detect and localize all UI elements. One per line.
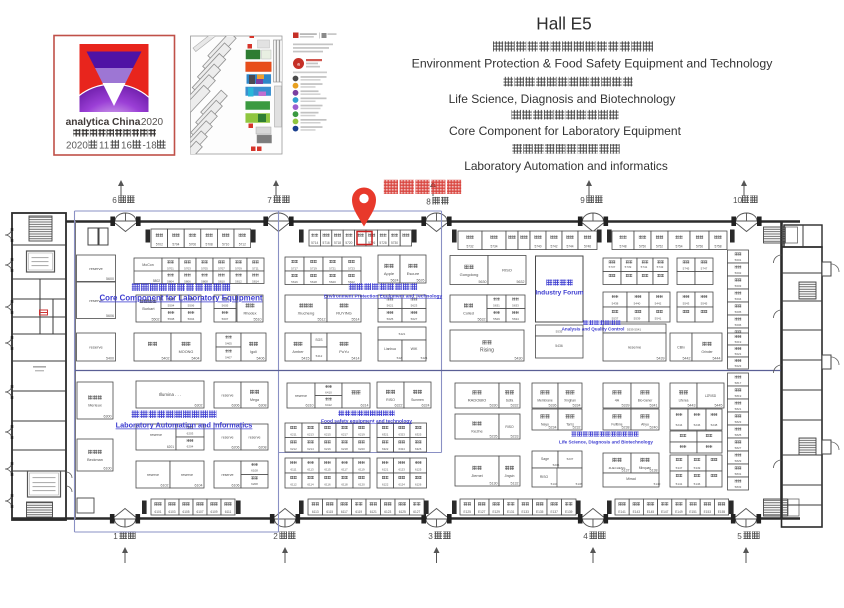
svg-text:5405: 5405: [225, 342, 232, 346]
svg-text:6324: 6324: [398, 447, 405, 451]
svg-text:5829: 5829: [735, 459, 742, 463]
svg-text:E143: E143: [633, 510, 641, 514]
svg-text:5146: 5146: [694, 482, 701, 486]
svg-text:6325: 6325: [415, 433, 422, 437]
svg-text:5821: 5821: [735, 407, 742, 411]
svg-text:5236: 5236: [553, 463, 560, 467]
svg-text:6124: 6124: [398, 483, 405, 487]
svg-text:6125: 6125: [399, 510, 406, 514]
svg-text:5244: 5244: [676, 423, 683, 427]
svg-text:6127: 6127: [413, 510, 420, 514]
svg-text:6121: 6121: [370, 510, 377, 514]
svg-text:6105: 6105: [182, 510, 189, 514]
svg-text:5712: 5712: [239, 243, 246, 247]
svg-text:6310: 6310: [306, 404, 314, 408]
svg-text:5140: 5140: [654, 482, 661, 486]
svg-text:5246: 5246: [694, 423, 701, 427]
svg-text:6206: 6206: [232, 446, 240, 450]
svg-text:Core Component for Laboratory: Core Component for Laboratory Equipment: [99, 294, 262, 303]
svg-text:5415: 5415: [302, 357, 310, 361]
svg-text:6324: 6324: [422, 404, 430, 408]
svg-text:5330: 5330: [490, 404, 498, 408]
svg-text:5754: 5754: [675, 245, 682, 249]
svg-text:E147: E147: [661, 510, 669, 514]
svg-text:Burkart: Burkart: [142, 307, 155, 311]
svg-text:6116: 6116: [324, 483, 331, 487]
svg-text:2020: 2020: [141, 117, 164, 128]
svg-text:5619: 5619: [735, 340, 742, 344]
svg-text:5748: 5748: [619, 245, 626, 249]
svg-text:6308: 6308: [259, 404, 267, 408]
svg-text:LZRISD: LZRISD: [705, 394, 717, 398]
svg-text:5728: 5728: [380, 241, 387, 245]
svg-text:PuYu: PuYu: [339, 349, 349, 354]
svg-text:6120: 6120: [358, 483, 365, 487]
svg-text:Liferea: Liferea: [679, 399, 689, 403]
svg-text:Lianhua: Lianhua: [384, 347, 396, 351]
svg-text:reserve: reserve: [147, 473, 159, 477]
svg-text:Illumina . . .: Illumina . . .: [159, 392, 181, 397]
svg-text:5720: 5720: [345, 241, 352, 245]
svg-text:5235: 5235: [490, 435, 498, 439]
svg-text:5633: 5633: [512, 304, 519, 308]
svg-text:5442: 5442: [683, 357, 691, 361]
svg-text:5444: 5444: [713, 357, 721, 361]
svg-text:5621: 5621: [735, 352, 742, 356]
svg-text:5625: 5625: [387, 317, 394, 321]
svg-text:Bio-Gener: Bio-Gener: [638, 399, 653, 403]
svg-text:5136: 5136: [576, 482, 583, 486]
svg-text:E135: E135: [536, 510, 544, 514]
svg-text:5630: 5630: [479, 280, 487, 284]
svg-text:MoCon: MoCon: [142, 263, 154, 267]
svg-text:5734: 5734: [490, 245, 497, 249]
svg-text:reserve: reserve: [89, 266, 103, 271]
svg-text:Analysis and Quality Control: Analysis and Quality Control: [562, 327, 625, 332]
svg-text:E151: E151: [689, 510, 697, 514]
svg-text:6107: 6107: [196, 510, 203, 514]
svg-text:6215: 6215: [324, 433, 331, 437]
svg-text:5412: 5412: [316, 354, 323, 358]
svg-text:Scifa: Scifa: [506, 399, 514, 403]
svg-text:5710: 5710: [222, 243, 229, 247]
svg-text:5248: 5248: [711, 423, 718, 427]
svg-text:6112: 6112: [290, 483, 297, 487]
svg-text:8: 8: [426, 198, 431, 207]
svg-text:a: a: [297, 62, 300, 67]
svg-text:Kezhe: Kezhe: [471, 429, 483, 434]
svg-text:6314: 6314: [361, 404, 369, 408]
svg-text:Gongdong: Gongdong: [460, 272, 479, 277]
svg-text:5440: 5440: [634, 302, 641, 306]
svg-text:Apple: Apple: [384, 271, 395, 276]
svg-text:5539 5541: 5539 5541: [627, 328, 642, 332]
svg-text:5607: 5607: [222, 317, 229, 321]
svg-text:5601: 5601: [735, 258, 742, 262]
svg-text:reserve: reserve: [222, 473, 234, 477]
svg-text:6100: 6100: [104, 467, 112, 471]
svg-text:7: 7: [267, 196, 272, 205]
svg-text:5237: 5237: [567, 457, 574, 461]
svg-text:5508: 5508: [168, 317, 175, 321]
svg-text:6117: 6117: [341, 468, 348, 472]
svg-text:6321: 6321: [382, 433, 389, 437]
svg-text:11: 11: [99, 141, 109, 152]
svg-text:5631: 5631: [493, 304, 500, 308]
svg-text:RISO: RISO: [505, 425, 514, 429]
svg-text:E133: E133: [522, 510, 530, 514]
svg-text:5424: 5424: [421, 356, 428, 360]
svg-text:5404: 5404: [192, 357, 200, 361]
svg-text:5414: 5414: [352, 357, 360, 361]
svg-text:6300: 6300: [104, 415, 112, 419]
svg-text:6218: 6218: [341, 447, 348, 451]
svg-text:Jiemei: Jiemei: [471, 473, 483, 478]
svg-text:Xinghan: Xinghan: [564, 399, 576, 403]
svg-text:5539: 5539: [634, 317, 641, 321]
svg-text:Laboratory Automation and Info: Laboratory Automation and Informatics: [116, 421, 253, 430]
svg-text:6114: 6114: [307, 483, 314, 487]
svg-text:5717: 5717: [291, 267, 298, 271]
svg-text:5400: 5400: [106, 357, 114, 361]
svg-text:5739: 5739: [625, 265, 632, 269]
svg-text:6203: 6203: [187, 432, 194, 436]
svg-text:5341: 5341: [650, 404, 658, 408]
svg-text:5600: 5600: [106, 277, 114, 281]
svg-text:6121: 6121: [382, 468, 389, 472]
svg-text:5704: 5704: [172, 243, 179, 247]
svg-text:5716: 5716: [323, 241, 330, 245]
svg-text:5407: 5407: [225, 356, 232, 360]
svg-text:5602: 5602: [735, 271, 742, 275]
svg-text:6111: 6111: [225, 510, 232, 514]
svg-text:5823: 5823: [735, 420, 742, 424]
svg-text:reserve: reserve: [181, 473, 193, 477]
svg-text:5705: 5705: [201, 267, 208, 271]
svg-text:5442: 5442: [655, 302, 662, 306]
svg-text:5742: 5742: [550, 245, 557, 249]
svg-text:5833: 5833: [735, 485, 742, 489]
svg-text:5240: 5240: [650, 426, 658, 430]
svg-text:5817: 5817: [735, 381, 742, 385]
svg-text:E131: E131: [507, 510, 515, 514]
svg-text:6201: 6201: [167, 445, 174, 449]
svg-text:5336: 5336: [549, 404, 557, 408]
svg-text:6208: 6208: [259, 446, 267, 450]
svg-text:6115: 6115: [326, 510, 333, 514]
svg-text:5632: 5632: [478, 318, 486, 322]
svg-text:5719: 5719: [310, 267, 317, 271]
svg-text:Rising: Rising: [480, 348, 494, 354]
svg-text:Life Science, Diagnosis and Bi: Life Science, Diagnosis and Biotechnolog…: [449, 92, 676, 106]
svg-text:5831: 5831: [735, 472, 742, 476]
svg-text:5545: 5545: [701, 302, 708, 306]
svg-text:Mega: Mega: [250, 398, 259, 402]
svg-text:5604: 5604: [735, 297, 742, 301]
svg-text:4A: 4A: [615, 399, 620, 403]
svg-text:5543: 5543: [683, 302, 690, 306]
svg-text:Grinder: Grinder: [701, 350, 713, 354]
svg-text:6104: 6104: [195, 484, 203, 488]
svg-text:6109: 6109: [210, 510, 217, 514]
svg-text:6323: 6323: [398, 433, 405, 437]
svg-text:Sage: Sage: [541, 457, 549, 461]
svg-text:5347: 5347: [676, 466, 683, 470]
svg-text:5623: 5623: [735, 364, 742, 368]
svg-text:5605: 5605: [222, 304, 229, 308]
svg-text:5504: 5504: [168, 304, 175, 308]
svg-text:5234: 5234: [549, 426, 557, 430]
svg-text:5814: 5814: [252, 280, 259, 284]
svg-text:5708: 5708: [206, 243, 213, 247]
svg-text:reserve: reserve: [249, 436, 261, 440]
svg-text:5134: 5134: [551, 482, 558, 486]
svg-text:6: 6: [112, 196, 117, 205]
svg-text:6108: 6108: [251, 469, 258, 473]
svg-text:5445: 5445: [715, 404, 723, 408]
svg-text:6117: 6117: [341, 510, 348, 514]
svg-text:Amber: Amber: [292, 350, 304, 354]
svg-text:6214: 6214: [307, 447, 314, 451]
svg-text:5510: 5510: [254, 318, 262, 322]
svg-text:5130: 5130: [490, 482, 498, 486]
svg-text:6115: 6115: [324, 468, 331, 472]
svg-text:RISO: RISO: [540, 475, 549, 479]
svg-text:5752: 5752: [656, 245, 663, 249]
svg-text:Core Component for Laboratory: Core Component for Laboratory Equipment: [449, 124, 682, 138]
svg-text:6126: 6126: [415, 483, 422, 487]
svg-text:5723: 5723: [348, 267, 355, 271]
svg-text:5606: 5606: [106, 314, 114, 318]
svg-text:5402: 5402: [162, 357, 170, 361]
svg-text:1: 1: [113, 532, 118, 541]
svg-text:5737: 5737: [609, 265, 616, 269]
svg-text:5529: 5529: [493, 317, 500, 321]
svg-text:MOONG: MOONG: [179, 350, 194, 354]
svg-text:5746: 5746: [584, 245, 591, 249]
svg-text:WIK: WIK: [411, 347, 418, 351]
svg-text:reserve: reserve: [150, 433, 162, 437]
svg-text:-18: -18: [143, 141, 158, 152]
svg-text:5709: 5709: [235, 267, 242, 271]
svg-text:5537: 5537: [612, 317, 619, 321]
svg-text:5740: 5740: [534, 245, 541, 249]
svg-text:6208: 6208: [251, 482, 258, 486]
svg-text:5701: 5701: [167, 267, 174, 271]
svg-text:Jingsin: Jingsin: [505, 474, 515, 478]
svg-text:6119: 6119: [358, 468, 365, 472]
svg-text:5802: 5802: [153, 279, 160, 283]
svg-text:5627: 5627: [411, 317, 418, 321]
svg-text:6103: 6103: [168, 510, 175, 514]
svg-text:5819: 5819: [735, 394, 742, 398]
svg-text:6102: 6102: [161, 484, 169, 488]
svg-text:6302: 6302: [195, 404, 203, 408]
svg-text:5232: 5232: [573, 426, 581, 430]
svg-text:5: 5: [737, 532, 742, 541]
svg-text:5827: 5827: [735, 446, 742, 450]
svg-text:6322: 6322: [395, 404, 403, 408]
svg-text:5621: 5621: [387, 304, 394, 308]
svg-text:5626: 5626: [417, 279, 425, 283]
svg-text:E125: E125: [464, 510, 472, 514]
svg-text:5233: 5233: [511, 435, 519, 439]
svg-text:5502: 5502: [152, 318, 160, 322]
svg-text:6326: 6326: [415, 447, 422, 451]
svg-text:RISO: RISO: [386, 398, 395, 402]
svg-text:E153: E153: [704, 510, 712, 514]
svg-text:5438: 5438: [612, 302, 619, 306]
svg-text:5141: 5141: [676, 482, 683, 486]
svg-text:5406: 5406: [257, 357, 265, 361]
svg-text:5604: 5604: [188, 317, 195, 321]
svg-text:6306: 6306: [232, 404, 240, 408]
svg-text:Food safety equipment and tech: Food safety equipment and technology: [321, 419, 412, 425]
svg-text:5603: 5603: [735, 284, 742, 288]
svg-text:6123: 6123: [384, 510, 391, 514]
svg-text:E139: E139: [565, 510, 573, 514]
svg-text:5623: 5623: [411, 304, 418, 308]
svg-text:6322: 6322: [382, 447, 389, 451]
svg-text:reserve: reserve: [628, 345, 642, 350]
svg-text:6113: 6113: [312, 510, 319, 514]
svg-text:Mirrad: Mirrad: [626, 477, 636, 481]
svg-text:E127: E127: [478, 510, 486, 514]
svg-text:6211: 6211: [290, 433, 297, 437]
svg-text:reserve: reserve: [222, 436, 234, 440]
svg-text:5606: 5606: [735, 323, 742, 327]
svg-text:5756: 5756: [696, 245, 703, 249]
svg-text:6204: 6204: [187, 445, 194, 449]
svg-text:5238: 5238: [622, 426, 630, 430]
svg-text:Xiucheng: Xiucheng: [298, 311, 315, 316]
svg-text:6111: 6111: [290, 468, 296, 472]
svg-text:5620: 5620: [329, 280, 336, 284]
svg-text:2: 2: [273, 532, 278, 541]
svg-text:5138: 5138: [650, 469, 658, 473]
svg-text:5804: 5804: [167, 280, 174, 284]
svg-text:5334: 5334: [573, 404, 581, 408]
svg-text:5541: 5541: [655, 317, 662, 321]
svg-text:Hall E5: Hall E5: [536, 14, 591, 34]
svg-text:5132: 5132: [511, 482, 519, 486]
svg-text:5718: 5718: [334, 241, 341, 245]
svg-text:5744: 5744: [566, 245, 573, 249]
svg-text:5632: 5632: [517, 280, 525, 284]
svg-text:5714: 5714: [311, 241, 318, 245]
svg-text:Beckman: Beckman: [87, 458, 103, 462]
svg-text:16: 16: [121, 141, 132, 152]
svg-text:6113: 6113: [307, 468, 314, 472]
svg-text:CBIx: CBIx: [677, 346, 685, 350]
svg-text:6101: 6101: [154, 510, 161, 514]
svg-text:5808: 5808: [201, 280, 208, 284]
svg-text:reserve: reserve: [89, 345, 103, 350]
svg-text:Industry Forum: Industry Forum: [535, 290, 583, 297]
svg-text:6119: 6119: [355, 510, 362, 514]
svg-text:4: 4: [583, 532, 588, 541]
svg-text:6125: 6125: [415, 468, 422, 472]
svg-text:5616: 5616: [291, 280, 298, 284]
svg-text:5634: 5634: [512, 317, 519, 321]
svg-text:reserve: reserve: [295, 394, 307, 398]
svg-text:Ahyu: Ahyu: [641, 423, 649, 427]
svg-text:5711: 5711: [252, 267, 259, 271]
svg-text:Colied: Colied: [463, 312, 474, 316]
svg-text:6106: 6106: [232, 484, 240, 488]
svg-text:Laboratory Automation and info: Laboratory Automation and informatics: [464, 159, 668, 173]
svg-text:5605: 5605: [735, 310, 742, 314]
svg-text:3: 3: [428, 532, 433, 541]
svg-text:5421: 5421: [399, 332, 406, 336]
svg-text:5618: 5618: [310, 280, 317, 284]
svg-text:6122: 6122: [382, 483, 389, 487]
svg-text:5702: 5702: [156, 243, 163, 247]
svg-text:5721: 5721: [329, 267, 336, 271]
svg-text:RUYING: RUYING: [336, 311, 352, 316]
svg-text:Escure: Escure: [407, 271, 420, 276]
svg-text:5812: 5812: [235, 280, 242, 284]
svg-text:6118: 6118: [341, 483, 348, 487]
svg-text:Environment Protection Equipme: Environment Protection Equipment and Tec…: [324, 294, 443, 300]
svg-text:Merieux: Merieux: [88, 404, 102, 408]
svg-text:E129: E129: [493, 510, 501, 514]
svg-text:6217: 6217: [341, 433, 348, 437]
svg-text:analytica China: analytica China: [66, 117, 141, 128]
svg-text:reserve: reserve: [222, 394, 234, 398]
svg-text:5703: 5703: [184, 267, 191, 271]
svg-text:5512: 5512: [318, 318, 326, 322]
svg-text:5706: 5706: [189, 243, 196, 247]
svg-text:5339: 5339: [622, 404, 630, 408]
svg-text:5745: 5745: [683, 267, 690, 271]
svg-text:2020: 2020: [66, 141, 88, 152]
svg-text:5741: 5741: [641, 265, 648, 269]
svg-text:Sunmen: Sunmen: [411, 398, 424, 402]
svg-text:5825: 5825: [735, 433, 742, 437]
svg-text:9: 9: [580, 196, 585, 205]
svg-text:5430: 5430: [515, 357, 523, 361]
svg-text:RADOBIO: RADOBIO: [468, 398, 486, 403]
svg-text:5506: 5506: [188, 304, 195, 308]
svg-text:E155: E155: [718, 510, 726, 514]
svg-text:10: 10: [733, 196, 743, 205]
svg-text:5332: 5332: [511, 404, 519, 408]
svg-text:6212: 6212: [290, 447, 297, 451]
svg-text:6219: 6219: [358, 433, 365, 437]
svg-text:Rhodex: Rhodex: [243, 312, 256, 316]
svg-text:5439: 5439: [657, 357, 665, 361]
svg-text:E145: E145: [647, 510, 655, 514]
svg-text:6216: 6216: [324, 447, 331, 451]
svg-text:5732: 5732: [466, 245, 473, 249]
svg-text:E149: E149: [675, 510, 683, 514]
svg-text:E137: E137: [551, 510, 559, 514]
svg-text:Igoli: Igoli: [250, 350, 257, 354]
svg-text:SGS: SGS: [315, 338, 323, 342]
svg-text:5514: 5514: [352, 318, 360, 322]
svg-text:5810: 5810: [218, 280, 225, 284]
svg-text:Membrane: Membrane: [537, 399, 552, 403]
svg-text:6412: 6412: [325, 403, 332, 407]
svg-text:5436: 5436: [555, 344, 563, 348]
svg-text:5758: 5758: [714, 245, 721, 249]
svg-text:Life Science, Diagnosis and Bi: Life Science, Diagnosis and Biotechnolog…: [559, 440, 653, 445]
svg-text:6410: 6410: [325, 391, 332, 395]
svg-text:5707: 5707: [218, 267, 225, 271]
svg-text:5750: 5750: [639, 245, 646, 249]
svg-text:6213: 6213: [307, 433, 314, 437]
